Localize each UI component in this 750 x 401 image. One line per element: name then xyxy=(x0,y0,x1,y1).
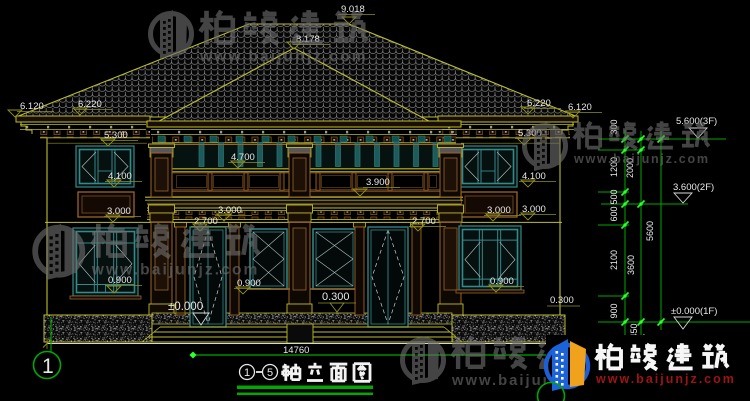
svg-text:1: 1 xyxy=(42,355,54,378)
svg-text:www.baijunjz.com: www.baijunjz.com xyxy=(595,372,736,386)
svg-text:3600: 3600 xyxy=(626,255,636,275)
svg-text:www.baijunjz.com: www.baijunjz.com xyxy=(573,152,710,166)
svg-text:3.900: 3.900 xyxy=(366,177,390,188)
svg-text:www.baijunjz.com: www.baijunjz.com xyxy=(91,261,260,278)
svg-text:±0.000: ±0.000 xyxy=(168,301,203,313)
svg-text:6.120: 6.120 xyxy=(20,101,44,112)
svg-text:2100: 2100 xyxy=(609,250,619,270)
svg-text:500: 500 xyxy=(609,189,619,204)
svg-text:www.baijunjz.com: www.baijunjz.com xyxy=(199,48,368,65)
svg-text:1: 1 xyxy=(244,367,250,379)
svg-text:3.600(2F): 3.600(2F) xyxy=(673,182,714,193)
svg-text:900: 900 xyxy=(609,303,619,318)
svg-text:0.300: 0.300 xyxy=(322,291,350,303)
svg-text:±0.000(1F): ±0.000(1F) xyxy=(671,306,717,317)
svg-text:5600: 5600 xyxy=(645,221,655,241)
svg-text:5: 5 xyxy=(267,367,273,379)
svg-text:600: 600 xyxy=(609,206,619,221)
svg-text:0.300: 0.300 xyxy=(550,295,574,306)
